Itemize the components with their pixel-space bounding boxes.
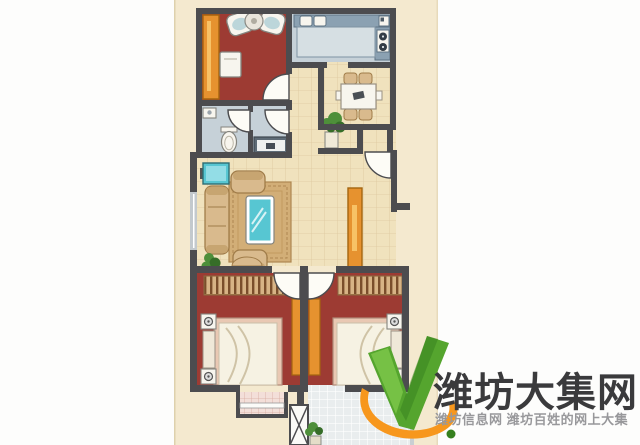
sink-bowl-icon — [300, 16, 312, 26]
wardrobe-icon — [309, 299, 320, 375]
tv-screen — [206, 166, 226, 181]
closet-icon — [338, 276, 402, 295]
dining-chair-icon — [344, 109, 357, 120]
wall-bottom-mid — [288, 385, 308, 392]
wall-right-lower — [402, 266, 409, 392]
vanity-tap — [266, 143, 275, 149]
wall-right-entry — [391, 150, 397, 212]
wall-bath-right-stub — [286, 104, 292, 110]
wall-bath-bottom — [190, 152, 292, 158]
wall-entry-hinge — [387, 124, 393, 154]
bay-window — [236, 392, 288, 418]
nightstand-lamp-icon — [201, 369, 216, 384]
window-pane-line — [193, 194, 195, 248]
wall-left-upper — [196, 8, 202, 158]
kitchen-worktop — [297, 27, 375, 57]
floorplan-photo: 潍坊大集网 潍坊信息网 潍坊百姓的网上大集 — [0, 0, 640, 445]
wall-right-stub — [397, 203, 410, 210]
x-column — [290, 405, 308, 445]
nightstand-lamp-icon — [201, 314, 216, 329]
wall-dining-bottom — [318, 124, 393, 130]
burner-dot — [382, 35, 384, 37]
sofa-arm — [206, 187, 228, 195]
wardrobe-icon — [292, 299, 301, 375]
round-table-center — [251, 18, 257, 24]
wall-bedroom-top-mid — [300, 266, 308, 273]
sofa-icon — [205, 186, 229, 254]
dining-chair-icon — [359, 73, 372, 84]
wall-divider-stub — [297, 392, 304, 405]
armchair-back — [233, 172, 263, 180]
windows — [190, 192, 197, 250]
headboard — [203, 331, 215, 368]
wall-bedroom-divider — [300, 273, 308, 392]
balcony-threshold — [308, 385, 345, 392]
burner-dot — [382, 46, 384, 48]
sink-bowl-icon — [314, 16, 326, 26]
wall-study-right — [286, 8, 292, 74]
dining-chair-icon — [344, 73, 357, 84]
leaf-dot-icon — [447, 430, 456, 439]
fridge-mark — [381, 18, 385, 22]
wall-left-lower — [190, 266, 197, 392]
wall-top — [196, 8, 396, 14]
watermark-tagline-text: 潍坊信息网 潍坊百姓的网上大集 — [435, 409, 628, 428]
bay-window-glass — [240, 403, 284, 408]
paper-left-edge — [174, 0, 176, 445]
sofa-arm — [206, 245, 228, 253]
wall-bedroom-top-left — [190, 266, 272, 273]
basin-drain — [207, 110, 211, 114]
wall-bottom-left — [190, 385, 240, 392]
kitchen — [294, 15, 390, 60]
study-wardrobe-front — [207, 21, 211, 91]
nightstand-lamp-icon — [387, 314, 402, 329]
wall-bedroom-top-right — [336, 266, 409, 273]
dining-chair-icon — [359, 109, 372, 120]
bay-wall-bottom — [236, 414, 288, 418]
wall-kitchen-bottom-right — [348, 62, 396, 68]
desk-icon — [220, 52, 241, 77]
wall-entry-left — [318, 148, 363, 154]
wall-dining-left — [318, 62, 324, 130]
wall-study-bath — [196, 100, 292, 106]
shoe-cabinet-front — [352, 205, 357, 251]
wall-right-upper — [390, 8, 396, 130]
bed-icon — [219, 323, 277, 385]
